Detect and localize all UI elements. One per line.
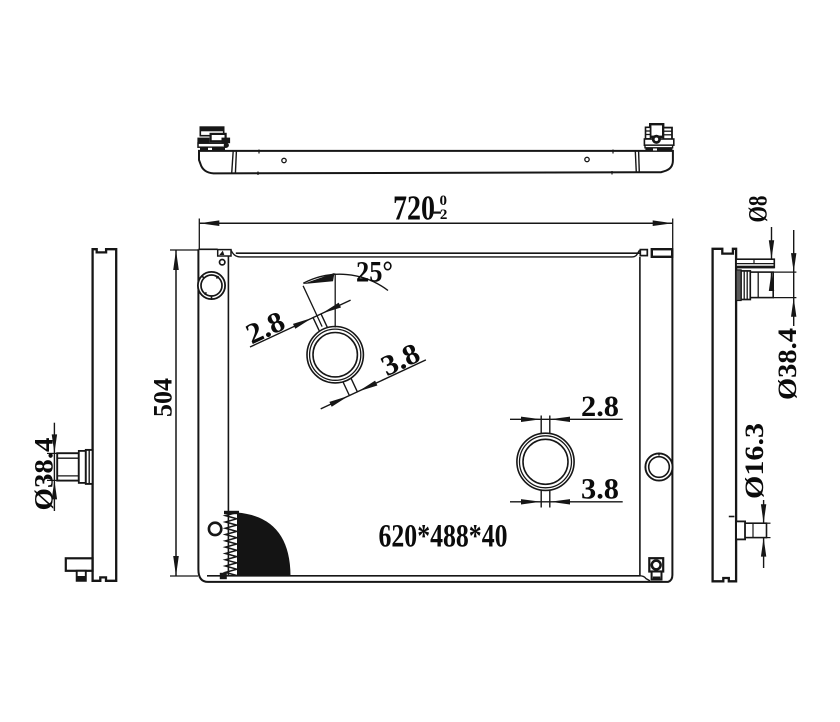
svg-text:25°: 25° xyxy=(356,256,393,289)
svg-text:504: 504 xyxy=(149,378,178,417)
svg-text:3.8: 3.8 xyxy=(581,472,619,505)
svg-text:Ø38.4: Ø38.4 xyxy=(773,328,802,400)
svg-text:2.8: 2.8 xyxy=(581,390,619,423)
svg-text:Ø16.3: Ø16.3 xyxy=(740,423,769,499)
svg-text:Ø38.4: Ø38.4 xyxy=(30,438,59,511)
svg-text:720: 720 xyxy=(393,189,435,228)
svg-text:Ø8: Ø8 xyxy=(744,196,773,223)
svg-text:2: 2 xyxy=(440,207,448,223)
svg-text:620*488*40: 620*488*40 xyxy=(379,519,508,555)
